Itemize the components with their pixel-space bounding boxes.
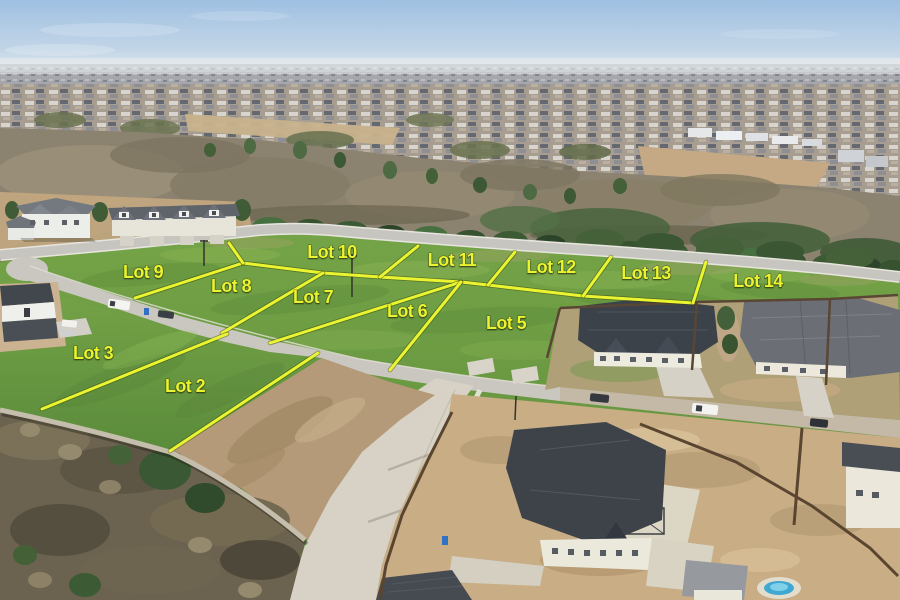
lot-label-lot-9: Lot 9 [123, 262, 164, 282]
tree [717, 306, 735, 330]
lot-label-lot-7: Lot 7 [293, 287, 334, 307]
lot-label-lot-10: Lot 10 [307, 242, 357, 262]
lot-label-lot-8: Lot 8 [211, 276, 252, 296]
lot-label-lot-13: Lot 13 [621, 263, 671, 283]
cloud [40, 23, 180, 37]
cedar-clump [185, 483, 225, 513]
lot-label-lot-3: Lot 3 [73, 343, 114, 363]
roof [0, 283, 54, 306]
lot-label-lot-6: Lot 6 [387, 301, 428, 321]
lot-label-lot-5: Lot 5 [486, 313, 527, 333]
trash-bin-blue [144, 308, 149, 315]
lot-label-lot-12: Lot 12 [526, 257, 576, 277]
lot-label-lot-14: Lot 14 [733, 271, 783, 291]
roof [2, 318, 58, 342]
cloud [720, 29, 840, 39]
driveway [150, 236, 164, 246]
aerial-photo-canvas: Lot 9Lot 8Lot 10Lot 7Lot 11Lot 6Lot 12Lo… [0, 0, 900, 600]
driveway [120, 236, 134, 246]
driveway [180, 236, 194, 245]
tree [722, 334, 738, 354]
lot-label-lot-2: Lot 2 [165, 376, 206, 396]
driveway [210, 235, 224, 244]
tree [5, 201, 19, 219]
cloud [190, 11, 290, 21]
tree [92, 202, 108, 222]
lot-label-lot-11: Lot 11 [428, 250, 477, 270]
horizon-haze [0, 58, 900, 86]
aerial-lot-map-screenshot: Lot 9Lot 8Lot 10Lot 7Lot 11Lot 6Lot 12Lo… [0, 0, 900, 600]
trash-bin-blue [442, 536, 448, 545]
cloud [5, 44, 115, 56]
